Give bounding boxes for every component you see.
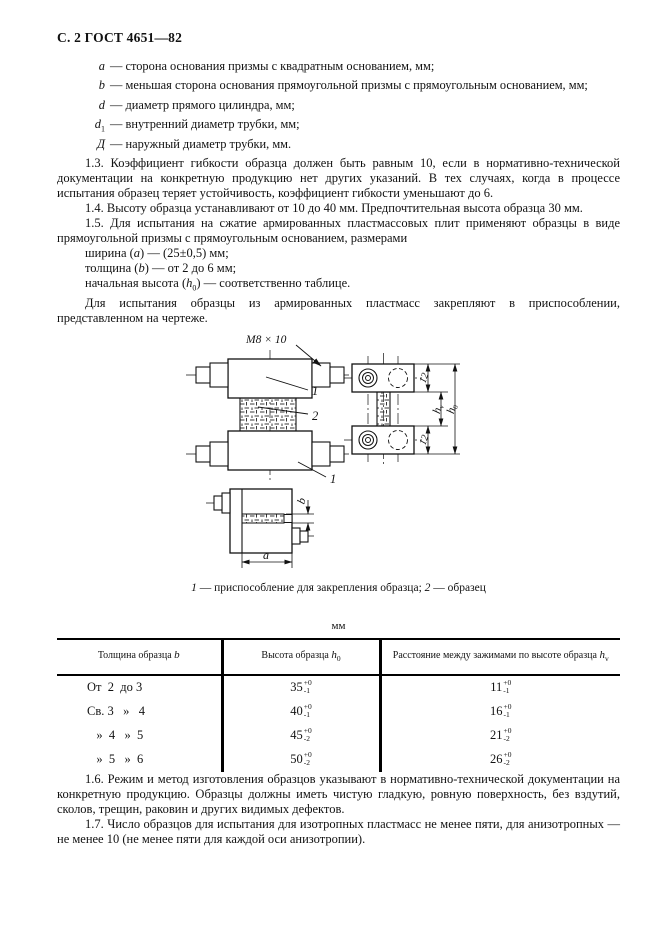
cell-height: 35+0-1	[222, 675, 380, 700]
definition-b: b — меньшая сторона основания прямоуголь…	[57, 78, 620, 97]
definition-text: — меньшая сторона основания прямоугольно…	[110, 78, 620, 97]
thread-label: М8 × 10	[245, 334, 287, 346]
definition-text: — внутренний диаметр трубки, мм;	[110, 117, 620, 136]
cell-thickness: От 2 до 3	[57, 675, 222, 700]
table-row: » 5 » 6 50+0-2 26+0-2	[57, 748, 620, 772]
definition-term: d	[99, 98, 105, 112]
dim-h0: h0	[445, 402, 460, 415]
dim-12-top: 12	[418, 372, 432, 385]
cell-clamp-distance: 26+0-2	[380, 748, 620, 772]
paragraph-fixture: Для испытания образцы из армированных пл…	[57, 296, 620, 326]
definition-term: a	[99, 59, 105, 73]
specimen-side	[377, 392, 390, 426]
specimen-plan	[242, 514, 284, 523]
cell-thickness: » 4 » 5	[57, 724, 222, 748]
definition-text: — наружный диаметр трубки, мм.	[110, 137, 620, 156]
cell-height: 40+0-1	[222, 700, 380, 724]
paragraph-1-6: 1.6. Режим и метод изготовления образцов…	[57, 772, 620, 817]
definition-term: Д	[97, 137, 105, 151]
dim-a: a	[263, 548, 269, 562]
dim-b: b	[296, 496, 309, 505]
table-row: От 2 до 3 35+0-1 11+0-1	[57, 675, 620, 700]
figure-caption: 1 — приспособление для закрепления образ…	[57, 582, 620, 594]
cell-clamp-distance: 11+0-1	[380, 675, 620, 700]
table-units-label: мм	[57, 620, 620, 632]
cell-thickness: » 5 » 6	[57, 748, 222, 772]
document-page: С. 2 ГОСТ 4651—82 a — сторона основания …	[0, 0, 661, 936]
paragraph-1-7: 1.7. Число образцов для испытания для из…	[57, 817, 620, 847]
cell-thickness: Св. 3 » 4	[57, 700, 222, 724]
spec-thickness: толщина (b) — от 2 до 6 мм;	[57, 261, 620, 276]
cell-height: 50+0-2	[222, 748, 380, 772]
cell-clamp-distance: 16+0-1	[380, 700, 620, 724]
callout-specimen: 2	[312, 409, 318, 423]
specimen-table: Толщина образца b Высота образца h0 Расс…	[57, 638, 620, 772]
dim-hv: hv	[431, 402, 446, 415]
definition-d: d — диаметр прямого цилиндра, мм;	[57, 98, 620, 117]
spec-width: ширина (a) — (25±0,5) мм;	[57, 246, 620, 261]
specimen-front	[240, 398, 296, 431]
figure: М8 × 10 1 2 1	[0, 330, 661, 580]
callout-fixture-top: 1	[312, 384, 318, 398]
col-header-clamp-distance: Расстояние между зажимами по высоте обра…	[380, 639, 620, 675]
definition-d1: d1 — внутренний диаметр трубки, мм;	[57, 117, 620, 136]
cell-height: 45+0-2	[222, 724, 380, 748]
spec-height: начальная высота (h0) — соответственно т…	[57, 276, 620, 296]
table-row: Св. 3 » 4 40+0-1 16+0-1	[57, 700, 620, 724]
technical-drawing: М8 × 10 1 2 1	[0, 330, 661, 580]
clamp-block-bottom	[228, 431, 312, 470]
definition-a: a — сторона основания призмы с квадратны…	[57, 59, 620, 78]
paragraph-1-4: 1.4. Высоту образца устанавливают от 10 …	[57, 201, 620, 216]
table-row: » 4 » 5 45+0-2 21+0-2	[57, 724, 620, 748]
cell-clamp-distance: 21+0-2	[380, 724, 620, 748]
dim-12-bottom: 12	[418, 434, 432, 447]
definition-list: a — сторона основания призмы с квадратны…	[57, 59, 620, 156]
definition-text: — диаметр прямого цилиндра, мм;	[110, 98, 620, 117]
definition-D: Д — наружный диаметр трубки, мм.	[57, 137, 620, 156]
definition-term: b	[99, 78, 105, 92]
paragraph-1-5: 1.5. Для испытания на сжатие армированны…	[57, 216, 620, 246]
page-header: С. 2 ГОСТ 4651—82	[57, 30, 620, 46]
definition-text: — сторона основания призмы с квадратным …	[110, 59, 620, 78]
col-header-thickness: Толщина образца b	[57, 639, 222, 675]
front-view	[186, 345, 350, 480]
callout-fixture-bottom: 1	[330, 472, 336, 486]
col-header-height: Высота образца h0	[222, 639, 380, 675]
paragraph-1-3: 1.3. Коэффициент гибкости образца должен…	[57, 156, 620, 201]
